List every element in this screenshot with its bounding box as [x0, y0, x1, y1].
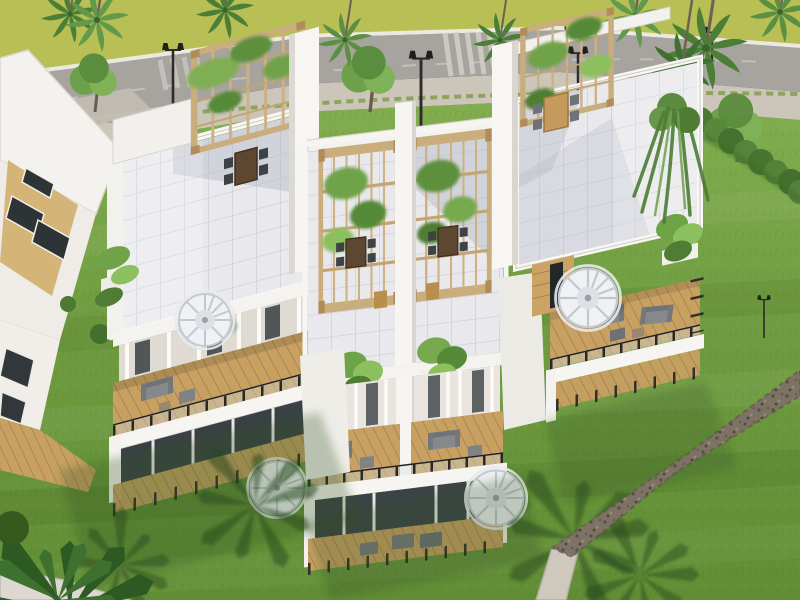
- aerial-villa-render: [0, 0, 800, 600]
- planter-box: [374, 290, 387, 309]
- planter-box: [426, 282, 439, 301]
- scene-canvas: [0, 0, 800, 600]
- outdoor-sofa: [640, 305, 674, 325]
